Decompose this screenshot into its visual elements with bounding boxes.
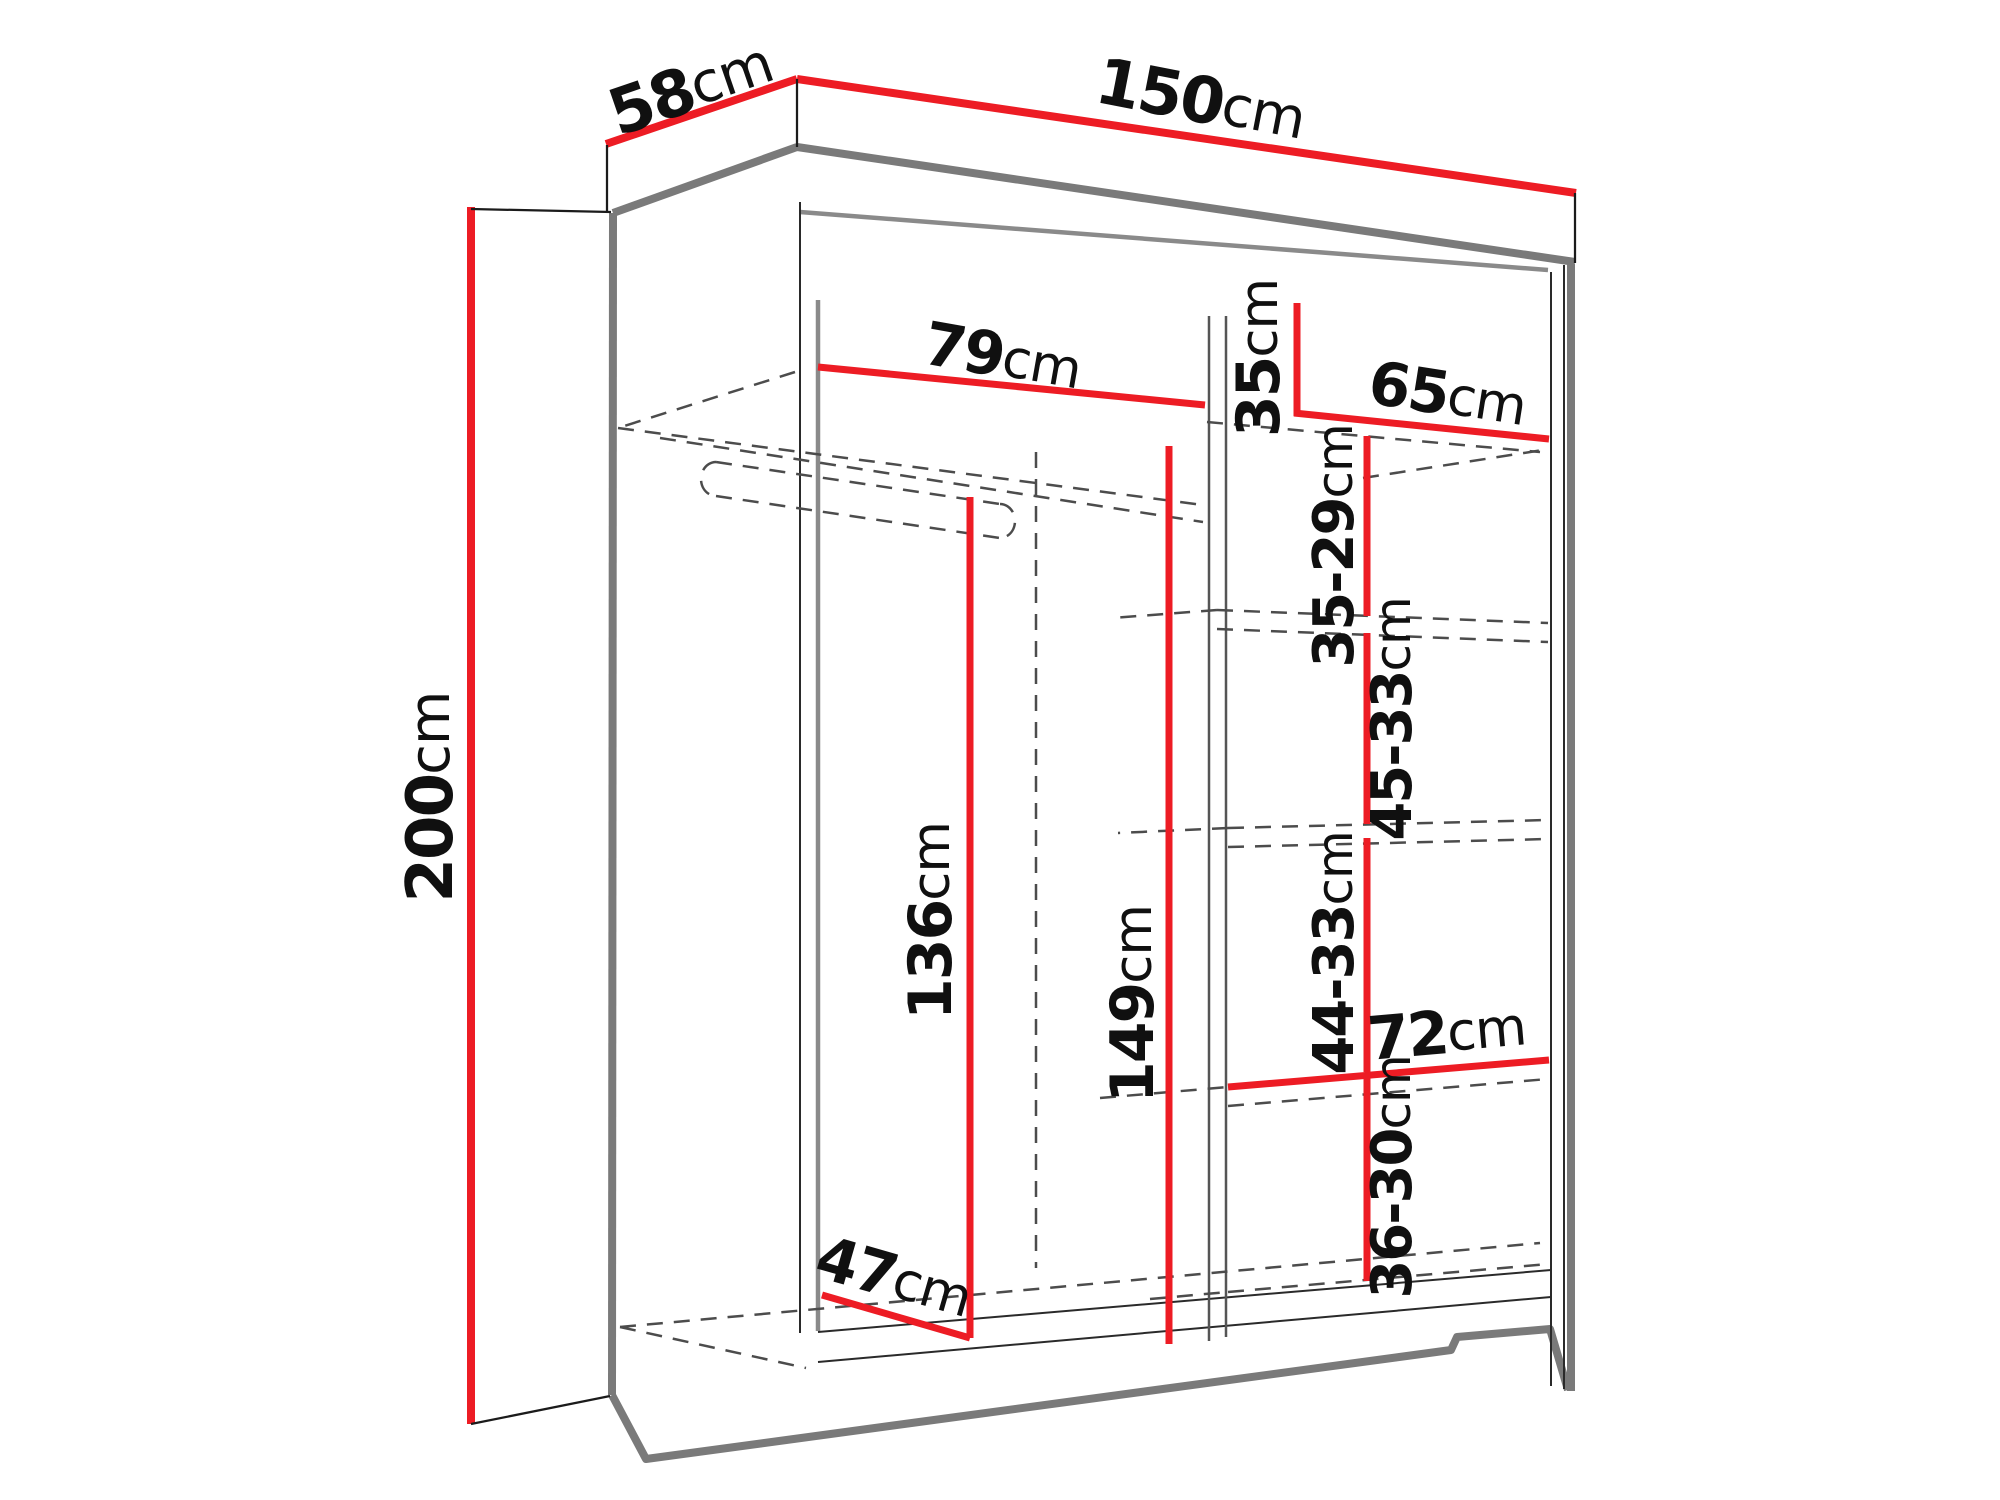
hanging-rod-right-cap: [1000, 504, 1015, 538]
dim-interior-height-unit: cm: [1103, 905, 1164, 984]
dim-label-shelf-spacing-3: 44-33cm: [1302, 831, 1367, 1074]
cornice-top-edge: [797, 147, 1575, 262]
dim-label-top-right-height: 35cm: [1224, 279, 1294, 437]
dim-height-value: 200: [394, 775, 468, 903]
wardrobe-outline: [612, 147, 1575, 1459]
dim-spacing3-unit: cm: [1306, 831, 1364, 905]
dim-right-width-unit: cm: [1443, 365, 1530, 438]
dim-label-height: 200cm: [394, 692, 468, 903]
plinth-bottom-edge: [612, 1329, 1568, 1459]
tick-height-bottom: [471, 1396, 610, 1424]
dim-label-hanging-height: 136cm: [896, 822, 966, 1020]
dim-spacing4-value: 36-30: [1360, 1130, 1425, 1299]
tick-height-top: [471, 209, 611, 212]
dim-top-shelf-value: 79: [919, 308, 1009, 391]
back-corner-edge-right: [1363, 450, 1543, 478]
dim-lower-width-unit: cm: [1444, 996, 1528, 1064]
dim-top-shelf-unit: cm: [998, 327, 1086, 401]
dim-spacing1-value: 35-29: [1302, 499, 1367, 668]
dim-label-shelf-spacing-4: 36-30cm: [1360, 1055, 1425, 1298]
dim-top-right-unit: cm: [1229, 279, 1290, 358]
dim-top-right-value: 35: [1224, 358, 1294, 438]
dim-label-depth: 58cm: [599, 26, 782, 151]
top-shelf-front-edge: [660, 438, 1203, 522]
side-panel-back-edge: [612, 213, 613, 1395]
dim-interior-height-value: 149: [1098, 984, 1168, 1103]
dim-label-interior-height: 149cm: [1098, 905, 1168, 1103]
hanging-rod-bottom: [716, 496, 1000, 538]
dim-spacing2-unit: cm: [1364, 597, 1422, 671]
floor-left-depth-edge: [620, 1327, 806, 1368]
dim-label-top-shelf-width: 79cm: [919, 308, 1087, 404]
dim-spacing1-unit: cm: [1306, 424, 1364, 498]
diagram-canvas: 58cm 150cm 200cm 79cm 35cm 65cm 35-29cm …: [0, 0, 2000, 1500]
top-shelf-left-depth-edge: [618, 372, 795, 428]
dim-spacing4-unit: cm: [1364, 1055, 1422, 1129]
shelf-depth-hint: [1118, 828, 1228, 833]
wardrobe-dimension-diagram: 58cm 150cm 200cm 79cm 35cm 65cm 35-29cm …: [0, 0, 2000, 1500]
dim-spacing2-value: 45-33: [1360, 672, 1425, 841]
shelf-depth-hint: [1112, 610, 1217, 618]
dim-hanging-unit: cm: [901, 822, 962, 901]
hanging-rod-left-cap: [701, 462, 716, 496]
dim-right-width-value: 65: [1364, 348, 1453, 430]
dim-height-unit: cm: [398, 692, 463, 775]
dim-label-shelf-spacing-1: 35-29cm: [1302, 424, 1367, 667]
side-panel-top-edge: [613, 147, 797, 213]
dim-label-shelf-spacing-2: 45-33cm: [1360, 597, 1425, 840]
dim-hanging-value: 136: [896, 901, 966, 1020]
dim-spacing3-value: 44-33: [1302, 906, 1367, 1075]
